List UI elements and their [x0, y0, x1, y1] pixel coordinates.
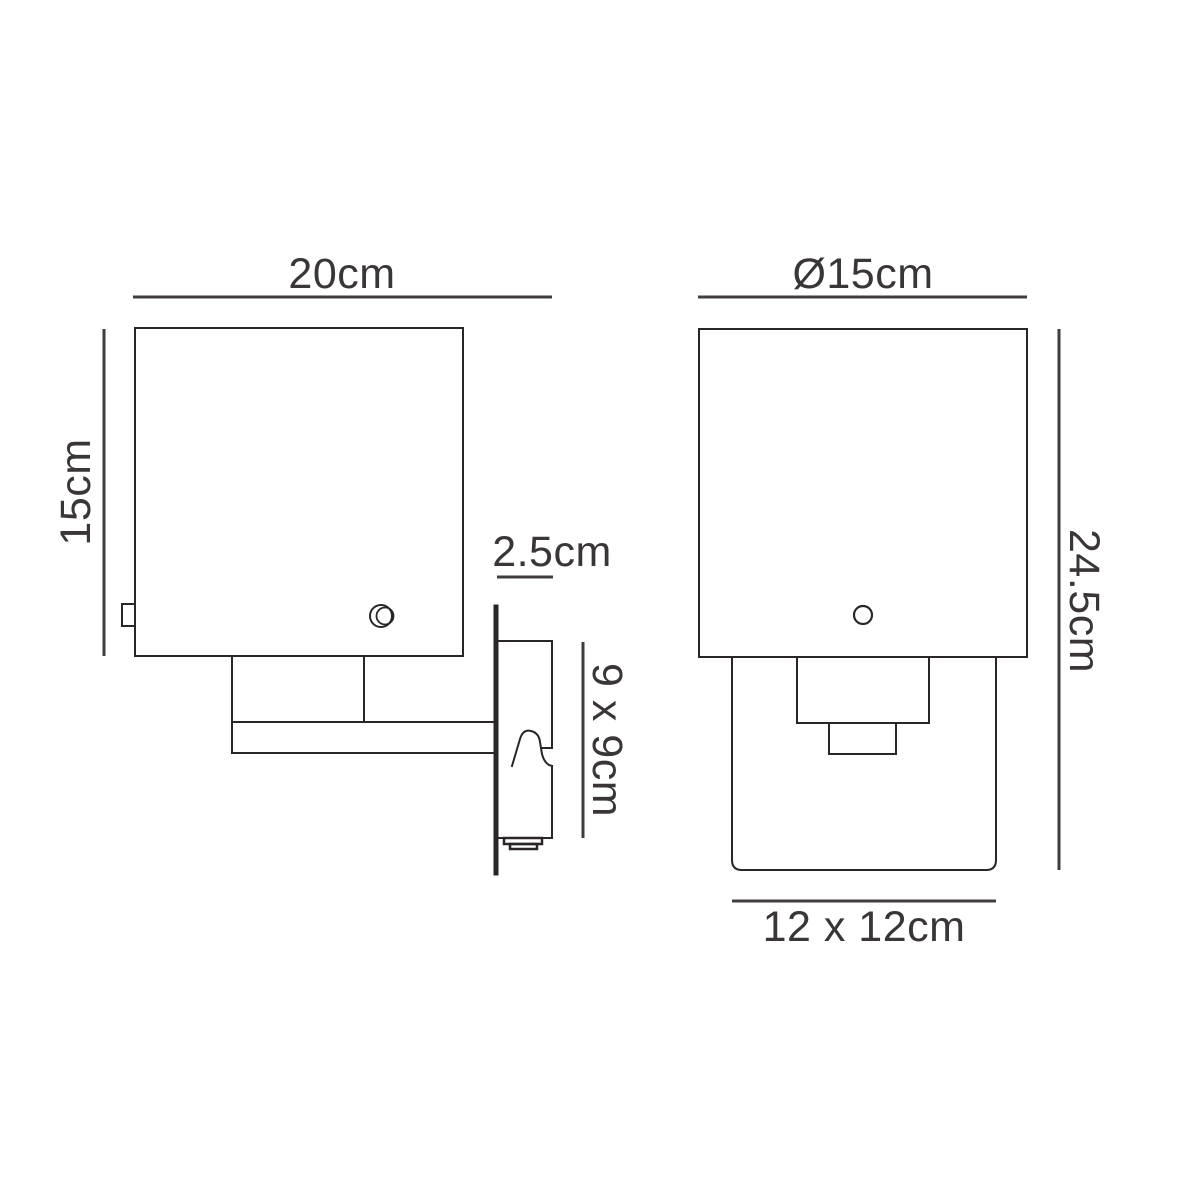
plate-size-label: 9 x 9cm — [583, 663, 631, 817]
lamp-holder-side — [232, 656, 364, 753]
diagram-canvas: 20cm 15cm 2.5cm 9 x 9cm Ø15cm 24.5cm 12 … — [0, 0, 1200, 1200]
mounting-arm-side — [232, 722, 494, 753]
backplate-front — [732, 657, 996, 870]
shade-width-label: 20cm — [288, 250, 395, 298]
overall-height-label: 24.5cm — [1060, 529, 1108, 673]
lamp-holder-neck-front — [829, 723, 896, 754]
terminal-block-bottom — [510, 844, 537, 849]
front-view-drawing — [699, 329, 1027, 870]
switch — [122, 604, 135, 626]
knob-inner-circle — [377, 608, 394, 625]
shade-outline-side — [135, 328, 463, 656]
lamp-holder-front — [797, 657, 929, 723]
dimension-lines — [104, 297, 1059, 901]
knob-front-circle — [854, 606, 872, 624]
dimension-labels: 20cm 15cm 2.5cm 9 x 9cm Ø15cm 24.5cm 12 … — [52, 250, 1108, 951]
side-view-drawing — [122, 328, 552, 873]
shade-outline-front — [699, 329, 1027, 657]
mounting-plate-side-lower — [497, 766, 552, 838]
shade-height-label: 15cm — [52, 438, 100, 545]
shade-diameter-label: Ø15cm — [792, 250, 933, 298]
backplate-size-label: 12 x 12cm — [763, 903, 966, 951]
wall-light-dimension-diagram: 20cm 15cm 2.5cm 9 x 9cm Ø15cm 24.5cm 12 … — [0, 0, 1200, 1200]
plate-depth-label: 2.5cm — [492, 528, 612, 576]
